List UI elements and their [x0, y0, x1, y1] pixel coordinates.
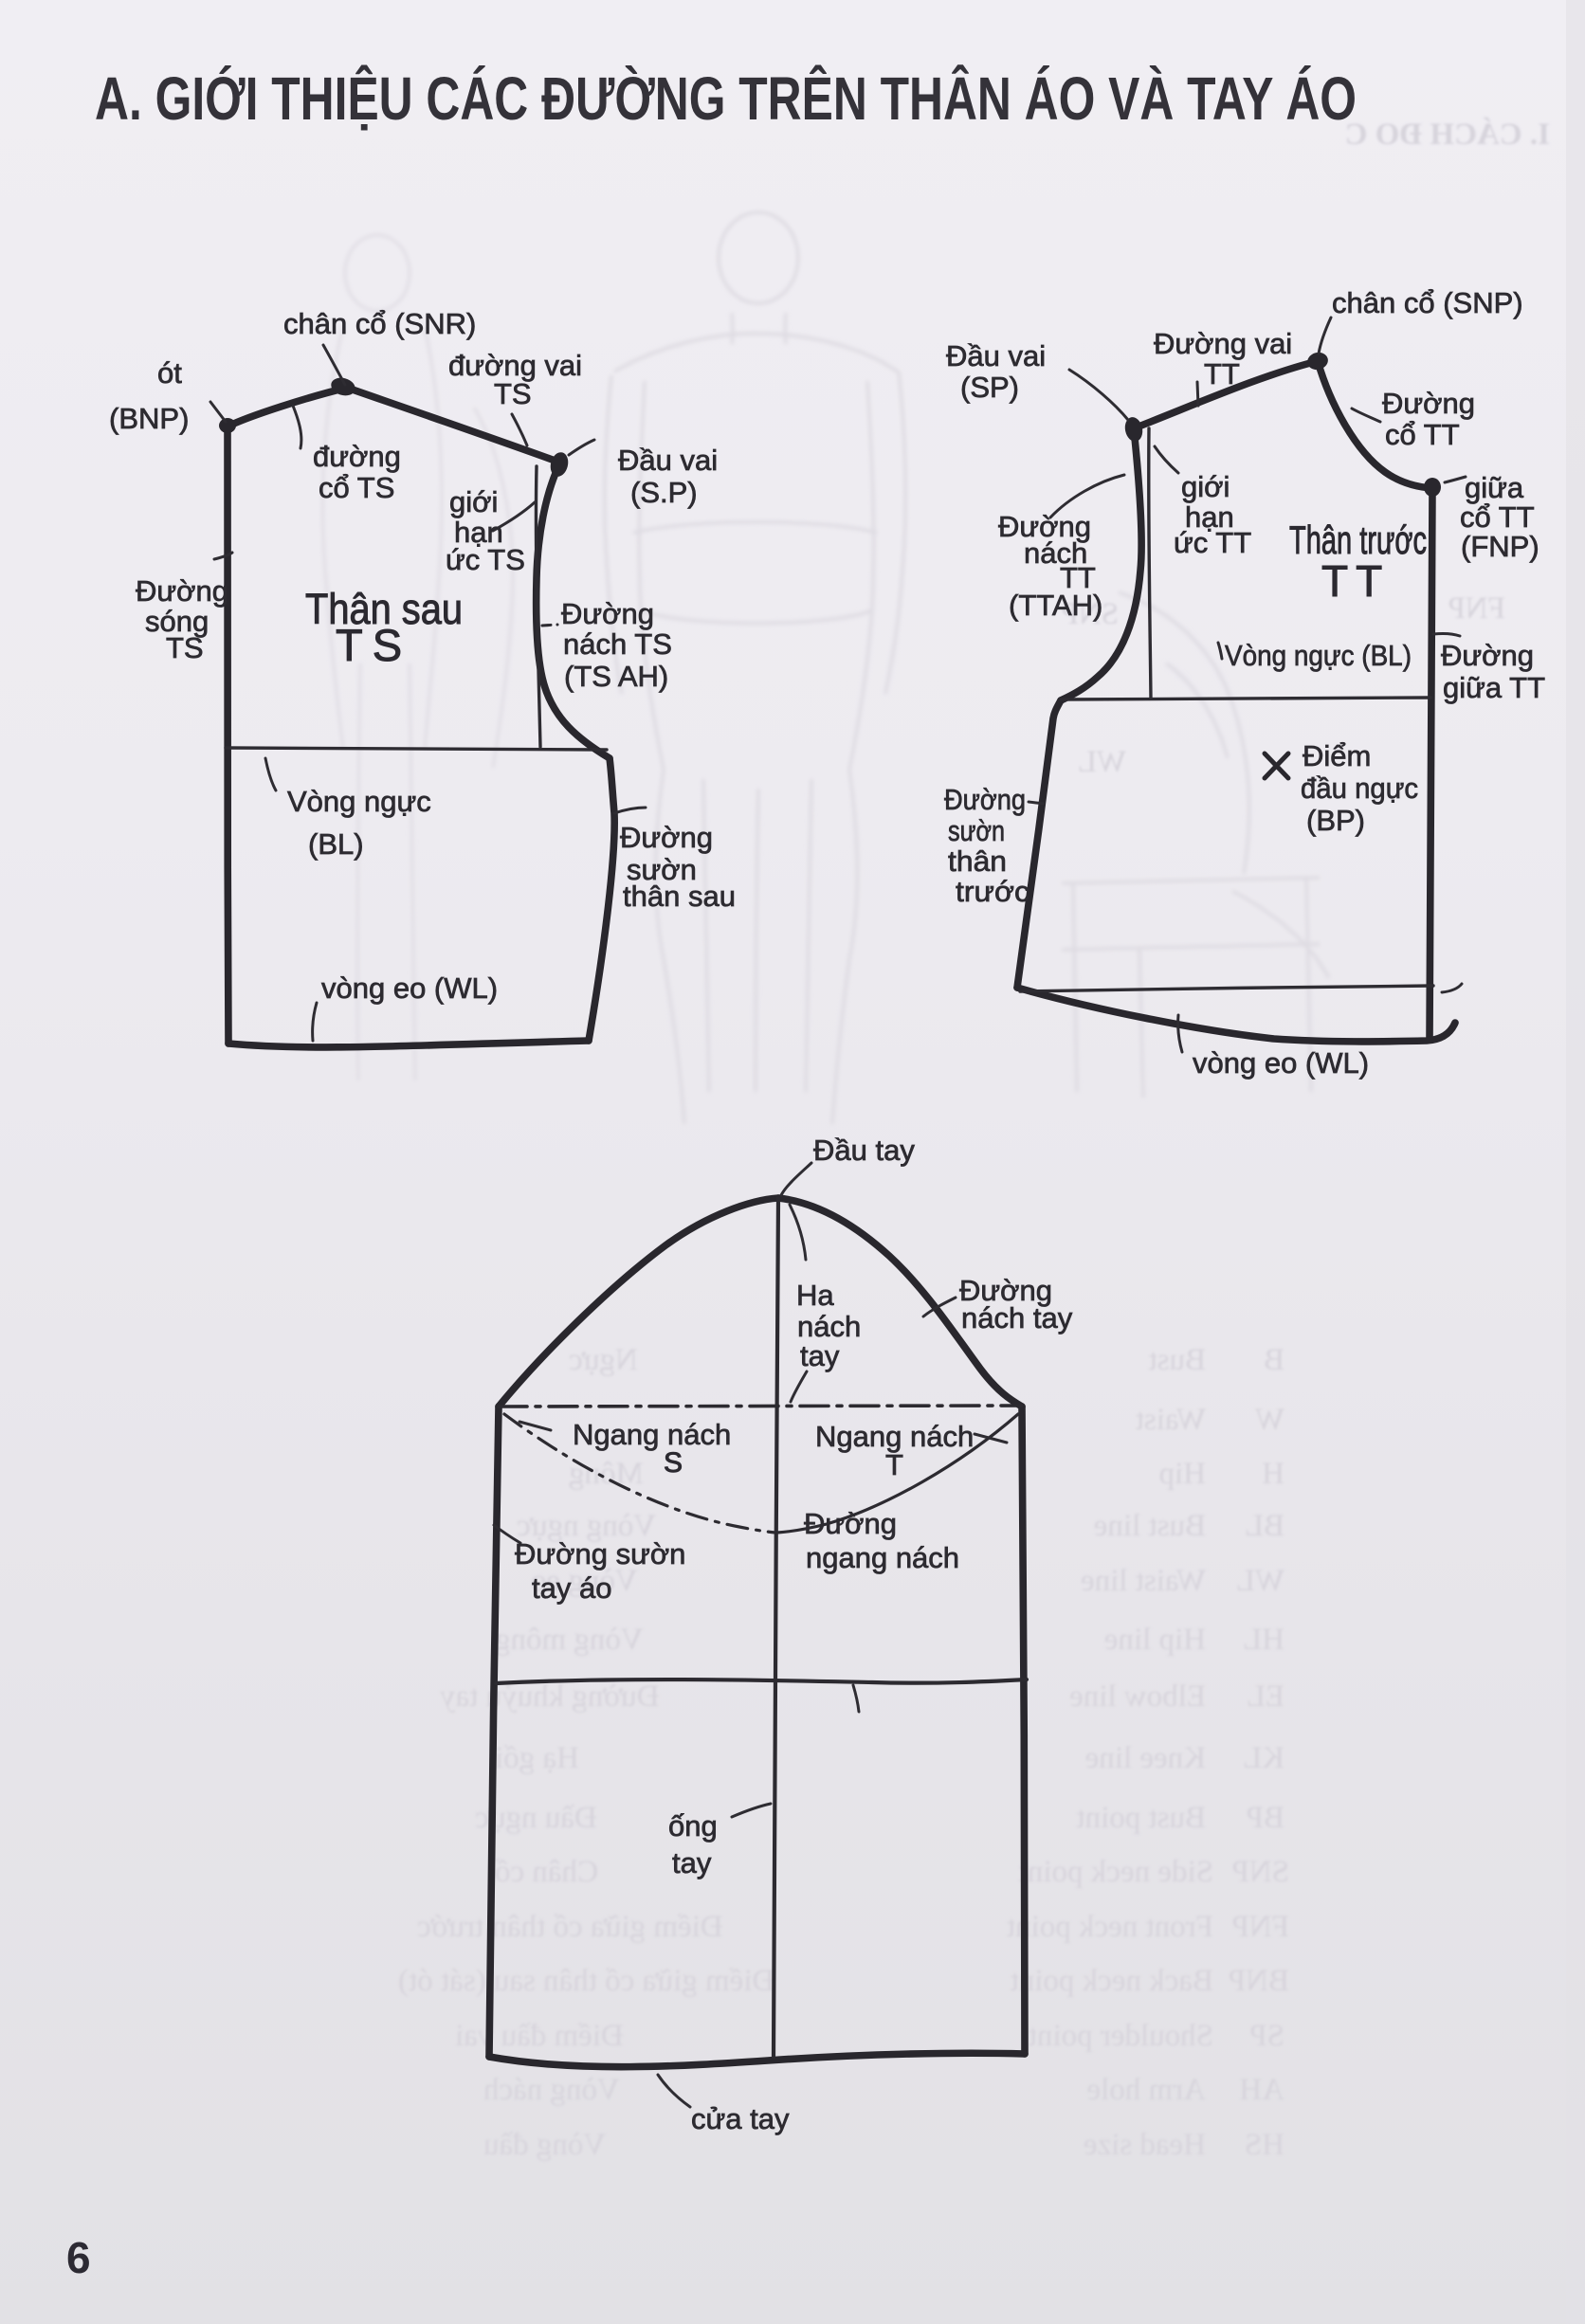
svg-text:Shoulder point: Shoulder point — [1029, 2019, 1213, 2053]
svg-text:Hạ gối: Hạ gối — [495, 1741, 579, 1775]
svg-text:Đầu tay: Đầu tay — [813, 1134, 915, 1167]
svg-text:HS: HS — [1245, 2128, 1284, 2162]
svg-text:trước: trước — [956, 875, 1029, 908]
svg-text:Bust line: Bust line — [1094, 1509, 1206, 1543]
svg-text:(BNP): (BNP) — [109, 402, 189, 435]
svg-text:Đường: Đường — [1382, 387, 1475, 420]
svg-text:Hip: Hip — [1159, 1457, 1207, 1491]
svg-text:giới: giới — [1181, 470, 1230, 503]
svg-text:cổ TT: cổ TT — [1385, 418, 1460, 451]
svg-text:ức TT: ức TT — [1174, 526, 1251, 559]
svg-text:TS: TS — [336, 620, 411, 670]
svg-text:cổ TS: cổ TS — [319, 471, 394, 504]
svg-text:Đầu vai: Đầu vai — [946, 339, 1046, 372]
svg-text:Điểm giữa cổ thân sau (sát ót): Điểm giữa cổ thân sau (sát ót) — [398, 1964, 774, 1998]
svg-text:tay: tay — [800, 1339, 840, 1372]
svg-text:Front neck point: Front neck point — [1007, 1910, 1213, 1944]
svg-text:ống: ống — [668, 1809, 718, 1843]
svg-text:BP: BP — [1247, 1801, 1284, 1835]
svg-text:TS: TS — [494, 377, 532, 410]
svg-text:EL: EL — [1247, 1679, 1284, 1714]
svg-text:A. GIỚI THIỆU CÁC ĐƯỜNG TRÊN T: A. GIỚI THIỆU CÁC ĐƯỜNG TRÊN THÂN ÁO VÀ … — [95, 64, 1357, 133]
svg-text:I. CÁCH ĐO C: I. CÁCH ĐO C — [1345, 117, 1550, 152]
svg-text:Ngang nách: Ngang nách — [573, 1418, 731, 1451]
svg-text:Head size: Head size — [1084, 2128, 1206, 2162]
svg-text:Back neck point: Back neck point — [1011, 1964, 1213, 1998]
svg-text:Đường khuỷu tay: Đường khuỷu tay — [440, 1679, 660, 1714]
svg-text:Ha: Ha — [796, 1279, 834, 1312]
svg-text:tay áo: tay áo — [532, 1571, 611, 1605]
svg-text:HL: HL — [1243, 1623, 1284, 1657]
svg-text:Đường: Đường — [136, 574, 228, 608]
svg-text:S: S — [664, 1447, 683, 1479]
svg-text:W: W — [1254, 1403, 1284, 1437]
svg-text:(TS AH): (TS AH) — [564, 660, 668, 693]
svg-text:Vòng mông: Vòng mông — [495, 1623, 644, 1657]
svg-text:Đường: Đường — [620, 821, 713, 854]
svg-text:SP: SP — [1249, 2019, 1284, 2053]
svg-text:Đầu vai: Đầu vai — [618, 444, 718, 477]
svg-text:SNP: SNP — [1231, 1855, 1289, 1889]
svg-text:(BP): (BP) — [1306, 804, 1365, 837]
svg-text:giữa: giữa — [1465, 471, 1524, 504]
svg-text:TT: TT — [1321, 556, 1390, 606]
svg-text:WL: WL — [1078, 745, 1126, 779]
svg-text:thân sau: thân sau — [623, 880, 736, 913]
svg-text:cửa tay: cửa tay — [691, 2102, 790, 2135]
svg-text:cổ TT: cổ TT — [1460, 500, 1535, 534]
svg-text:đầu ngực: đầu ngực — [1301, 772, 1418, 805]
svg-text:Arm hole: Arm hole — [1086, 2073, 1206, 2107]
svg-text:nách tay: nách tay — [961, 1301, 1073, 1334]
svg-text:AH: AH — [1239, 2073, 1284, 2107]
svg-text:B: B — [1264, 1343, 1284, 1377]
svg-text:FNP: FNP — [1448, 591, 1505, 626]
svg-text:TS: TS — [166, 631, 204, 664]
svg-text:H: H — [1262, 1457, 1284, 1491]
svg-text:thân: thân — [948, 844, 1007, 878]
svg-text:Waist: Waist — [1136, 1403, 1206, 1437]
svg-text:Chân cổ: Chân cổ — [495, 1855, 598, 1889]
svg-text:Đường: Đường — [1441, 639, 1534, 672]
svg-text:tay: tay — [672, 1846, 712, 1879]
svg-text:Đường sườn: Đường sườn — [515, 1537, 685, 1571]
svg-text:Vòng nách: Vòng nách — [483, 2073, 620, 2107]
svg-text:chân cổ (SNP): chân cổ (SNP) — [1332, 286, 1523, 319]
svg-text:Đường: Đường — [561, 597, 654, 630]
svg-text:Đường: Đường — [944, 783, 1026, 816]
svg-text:Điểm giữa cổ thân trước: Điểm giữa cổ thân trước — [417, 1910, 723, 1944]
svg-text:Thân trước: Thân trước — [1289, 517, 1427, 562]
svg-text:Đường vai: Đường vai — [1154, 327, 1292, 360]
svg-text:(FNP): (FNP) — [1461, 530, 1539, 563]
svg-text:T: T — [885, 1448, 903, 1481]
svg-text:(BL): (BL) — [308, 827, 364, 861]
svg-text:Hip line: Hip line — [1104, 1623, 1206, 1657]
svg-text:(S.P): (S.P) — [630, 476, 698, 509]
svg-text:Elbow line: Elbow line — [1069, 1679, 1206, 1714]
svg-text:(TTAH): (TTAH) — [1009, 589, 1102, 622]
svg-text:BNP: BNP — [1229, 1964, 1289, 1998]
svg-text:(SP): (SP) — [960, 371, 1019, 404]
svg-text:Side neck point: Side neck point — [1019, 1855, 1213, 1889]
svg-text:Điểm: Điểm — [1303, 739, 1371, 772]
svg-text:6: 6 — [66, 2233, 91, 2282]
svg-text:Waist line: Waist line — [1081, 1564, 1206, 1598]
svg-text:Vòng đầu: Vòng đầu — [483, 2128, 606, 2162]
svg-text:chân cổ (SNR): chân cổ (SNR) — [283, 307, 476, 340]
svg-text:Vòng ngực: Vòng ngực — [287, 785, 431, 818]
svg-text:Ngực: Ngực — [569, 1343, 638, 1377]
svg-text:Knee line: Knee line — [1085, 1741, 1206, 1775]
svg-text:vòng eo (WL): vòng eo (WL) — [321, 971, 498, 1005]
svg-text:đường: đường — [313, 440, 401, 473]
svg-text:nách TS: nách TS — [563, 627, 672, 661]
svg-text:Điểm đầu vai: Điểm đầu vai — [455, 2019, 624, 2053]
svg-text:sườn: sườn — [948, 814, 1005, 847]
svg-text:ót: ót — [157, 356, 182, 390]
svg-text:ức TS: ức TS — [446, 543, 525, 576]
svg-text:Vòng ngực (BL): Vòng ngực (BL) — [1225, 639, 1412, 672]
svg-text:Mông: Mông — [569, 1457, 644, 1491]
svg-text:WL: WL — [1236, 1564, 1284, 1598]
svg-text:giữa TT: giữa TT — [1443, 671, 1545, 704]
svg-text:giới: giới — [449, 485, 498, 518]
svg-text:FNP: FNP — [1231, 1910, 1289, 1944]
svg-text:nách: nách — [797, 1310, 861, 1343]
svg-text:ngang nách: ngang nách — [806, 1541, 959, 1574]
svg-text:vòng eo (WL): vòng eo (WL) — [1193, 1046, 1369, 1080]
svg-text:TT: TT — [1204, 357, 1240, 390]
svg-text:KL: KL — [1243, 1741, 1284, 1775]
svg-text:Bust point: Bust point — [1076, 1801, 1206, 1835]
svg-text:Đường: Đường — [804, 1507, 897, 1540]
svg-text:BL: BL — [1245, 1509, 1284, 1543]
svg-text:Bust: Bust — [1148, 1343, 1206, 1377]
